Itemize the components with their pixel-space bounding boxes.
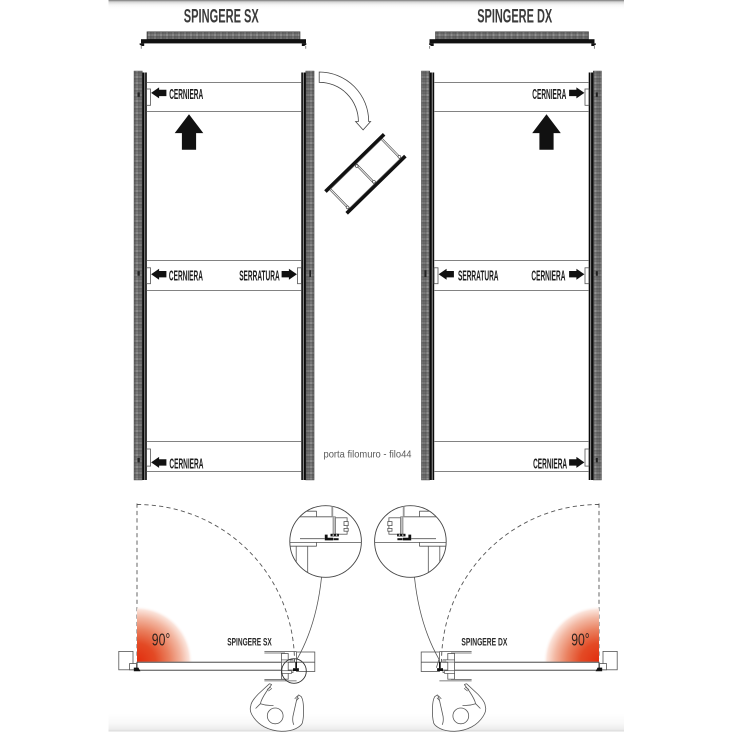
svg-text:SPINGERE SX: SPINGERE SX [184,6,259,28]
svg-text:CERNIERA: CERNIERA [532,86,566,103]
svg-text:SPINGERE DX: SPINGERE DX [461,636,507,648]
svg-text:porta filomuro - filo44: porta filomuro - filo44 [324,450,412,461]
svg-text:CERNIERA: CERNIERA [169,86,203,103]
svg-text:SERRATURA: SERRATURA [458,267,499,284]
svg-text:SERRATURA: SERRATURA [239,267,280,284]
svg-text:CERNIERA: CERNIERA [531,267,565,284]
svg-text:90°: 90° [152,630,171,650]
svg-text:CERNIERA: CERNIERA [533,456,567,473]
svg-text:CERNIERA: CERNIERA [169,267,203,284]
svg-text:CERNIERA: CERNIERA [169,456,203,473]
svg-text:90°: 90° [571,630,590,650]
svg-text:SPINGERE DX: SPINGERE DX [477,6,552,28]
svg-text:SPINGERE SX: SPINGERE SX [227,636,272,648]
